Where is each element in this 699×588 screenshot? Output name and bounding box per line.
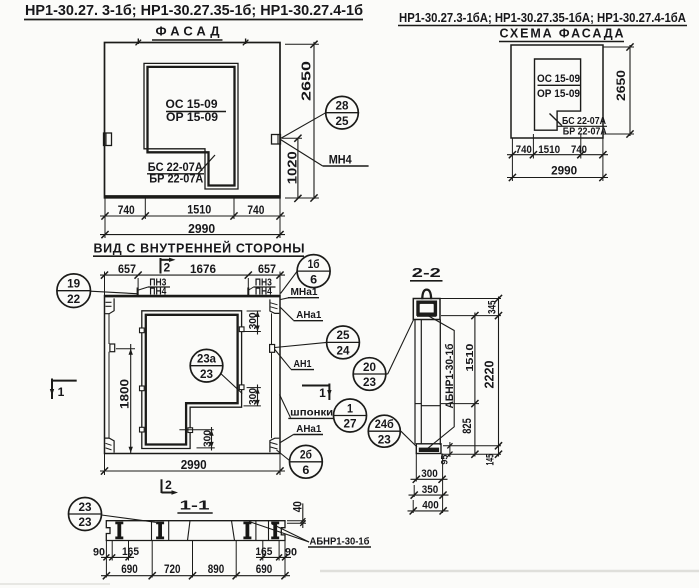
svg-text:1510: 1510 (538, 144, 560, 156)
svg-text:2б: 2б (300, 450, 312, 462)
svg-text:657: 657 (258, 264, 276, 276)
svg-text:27: 27 (344, 419, 357, 431)
svg-text:300: 300 (421, 468, 438, 480)
svg-text:2990: 2990 (551, 165, 577, 177)
svg-text:22: 22 (67, 294, 80, 306)
svg-text:ОР 15-09: ОР 15-09 (537, 88, 580, 100)
svg-text:23а: 23а (197, 354, 217, 366)
svg-text:20: 20 (363, 362, 376, 374)
svg-text:657: 657 (118, 264, 136, 276)
svg-text:24: 24 (337, 346, 351, 358)
svg-text:720: 720 (164, 564, 181, 576)
svg-text:АН1: АН1 (294, 358, 312, 370)
svg-text:28: 28 (336, 101, 350, 113)
svg-text:690: 690 (121, 564, 138, 576)
svg-text:ПН4: ПН4 (149, 287, 166, 298)
svg-text:БР 22-07А: БР 22-07А (149, 174, 203, 186)
svg-text:23: 23 (200, 369, 213, 381)
svg-text:ОР 15-09: ОР 15-09 (166, 110, 218, 124)
svg-text:2220: 2220 (483, 360, 497, 388)
svg-text:шпонки: шпонки (290, 407, 333, 419)
svg-text:1020: 1020 (286, 151, 300, 184)
svg-text:1-1: 1-1 (180, 499, 210, 513)
svg-text:740: 740 (516, 144, 532, 156)
svg-text:740: 740 (118, 203, 135, 217)
svg-text:740: 740 (247, 203, 264, 217)
svg-text:2-2: 2-2 (412, 266, 441, 280)
svg-text:740: 740 (571, 144, 587, 156)
svg-text:350: 350 (422, 484, 439, 496)
svg-text:БС 22-07А: БС 22-07А (148, 162, 203, 174)
svg-text:2650: 2650 (616, 70, 628, 101)
svg-text:2: 2 (165, 478, 172, 492)
svg-text:ВИД С ВНУТРЕННЕЙ СТОРОНЫ: ВИД С ВНУТРЕННЕЙ СТОРОНЫ (94, 241, 305, 256)
svg-text:825: 825 (460, 418, 474, 434)
svg-text:19: 19 (67, 279, 80, 291)
svg-text:1800: 1800 (119, 379, 131, 409)
svg-text:145: 145 (485, 454, 497, 466)
svg-text:НР1-30.27. 3-1б; НР1-30.27.35: НР1-30.27. 3-1б; НР1-30.27.35-1б; НР1-30… (25, 2, 363, 19)
svg-text:1: 1 (58, 385, 65, 399)
svg-text:345: 345 (486, 300, 498, 314)
svg-text:АНа1: АНа1 (296, 309, 321, 321)
svg-text:25: 25 (336, 116, 350, 128)
svg-text:23: 23 (79, 502, 92, 514)
svg-text:400: 400 (422, 500, 439, 512)
svg-text:690: 690 (256, 564, 273, 576)
svg-text:1676: 1676 (190, 264, 216, 276)
svg-text:НР1-30.27.3-1бА; НР1-30.27.35-: НР1-30.27.3-1бА; НР1-30.27.35-1бА; НР1-3… (399, 10, 687, 25)
svg-text:6: 6 (302, 465, 309, 477)
svg-text:165: 165 (122, 546, 139, 558)
svg-text:300: 300 (247, 388, 259, 405)
svg-text:95: 95 (440, 454, 451, 465)
svg-text:АНа1: АНа1 (296, 423, 321, 435)
svg-text:23: 23 (378, 434, 391, 446)
svg-text:2: 2 (163, 261, 170, 275)
svg-text:БР 22-07А: БР 22-07А (563, 125, 607, 137)
svg-text:1б: 1б (308, 259, 320, 271)
svg-text:МН4: МН4 (329, 155, 353, 167)
svg-text:ОС 15-09: ОС 15-09 (537, 73, 580, 85)
svg-text:24б: 24б (375, 419, 394, 431)
svg-text:АБНР1-30-1б: АБНР1-30-1б (444, 343, 456, 408)
svg-text:890: 890 (208, 564, 225, 576)
svg-text:ПН4: ПН4 (255, 287, 272, 298)
svg-text:2650: 2650 (299, 61, 314, 101)
svg-text:АБНР1-30-1б: АБНР1-30-1б (310, 536, 370, 548)
svg-text:1: 1 (347, 403, 354, 415)
svg-text:1: 1 (319, 386, 326, 400)
svg-text:23: 23 (79, 517, 92, 529)
svg-text:ФАСАД: ФАСАД (156, 24, 221, 39)
svg-text:90: 90 (93, 546, 105, 558)
svg-text:165: 165 (255, 546, 272, 558)
svg-text:2990: 2990 (181, 458, 207, 472)
svg-text:1510: 1510 (187, 202, 211, 216)
svg-text:МНа1: МНа1 (291, 286, 318, 298)
svg-text:1510: 1510 (464, 344, 476, 372)
svg-text:СХЕМА ФАСАДА: СХЕМА ФАСАДА (500, 27, 624, 41)
svg-text:300: 300 (247, 312, 259, 329)
svg-text:23: 23 (363, 377, 376, 389)
svg-text:90: 90 (285, 546, 297, 558)
svg-text:40: 40 (293, 501, 305, 512)
svg-text:300: 300 (201, 430, 213, 447)
svg-text:25: 25 (337, 330, 351, 342)
svg-text:2990: 2990 (188, 222, 215, 236)
svg-text:6: 6 (310, 274, 317, 286)
